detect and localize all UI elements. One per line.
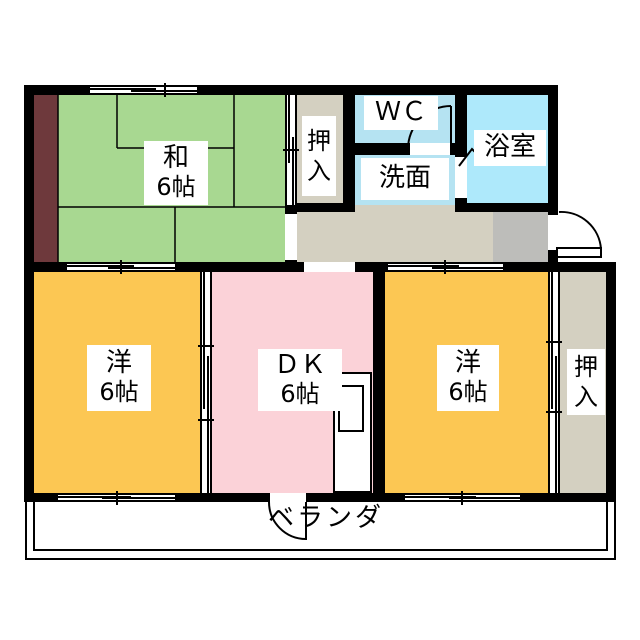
window-westernright-bottom [405, 493, 520, 502]
wall-hall-top-right [455, 203, 558, 212]
floor-plan: 和 6帖 押 入 ＷＣ 洗面 浴室 洋 6帖 ＤＫ 6帖 洋 6帖 押 入 ベラ… [0, 0, 640, 640]
wall-right-under-entrance [548, 252, 558, 262]
slidingdoor-japanese-closet [285, 95, 297, 205]
window-japanese-top [90, 85, 197, 95]
closet-right-char2: 入 [574, 382, 598, 412]
veranda-name: ベランダ [268, 504, 384, 534]
label-dining-kitchen: ＤＫ 6帖 [258, 349, 342, 411]
closet-right-char1: 押 [574, 352, 598, 382]
hallway [297, 205, 493, 262]
wall-right-upper [548, 85, 558, 215]
door-bathroom [455, 155, 467, 200]
dk-name: ＤＫ [274, 351, 326, 381]
label-japanese-room: 和 6帖 [144, 141, 208, 205]
wall-closet-wc [343, 95, 355, 205]
label-western-right: 洋 6帖 [437, 345, 499, 411]
entrance-door-swing-arc [559, 212, 601, 249]
slidingdoor-westernright-closet [548, 272, 560, 493]
tatami-edge-strip [34, 95, 58, 262]
door-entrance-opening [548, 213, 558, 252]
western-right-size: 6帖 [448, 379, 487, 407]
slidingdoor-westernleft-dk [200, 272, 212, 493]
slidingdoor-hall-westernright [388, 262, 503, 272]
wall-right-lower [606, 262, 616, 502]
closet-top-char2: 入 [307, 156, 331, 186]
doorway-japanese-hall [285, 212, 297, 262]
door-dk-veranda [268, 493, 308, 502]
closet-top-char1: 押 [307, 126, 331, 156]
wc-name: ＷＣ [375, 98, 427, 128]
western-right-name: 洋 [455, 349, 481, 379]
entrance-door-leaf [557, 248, 601, 257]
label-bathroom: 浴室 [474, 130, 546, 166]
wall-left [24, 85, 34, 502]
dk-size: 6帖 [280, 381, 319, 409]
entrance-step [493, 212, 548, 262]
label-western-left: 洋 6帖 [87, 345, 151, 411]
western-left-size: 6帖 [99, 379, 138, 407]
label-closet-right: 押 入 [567, 349, 605, 415]
slidingdoor-japanese-westernleft [67, 262, 175, 272]
japanese-room-size: 6帖 [156, 174, 195, 202]
window-westernleft-bottom [58, 493, 175, 502]
washroom-name: 洗面 [379, 164, 431, 194]
label-veranda: ベランダ [268, 504, 384, 534]
door-wc [408, 143, 452, 155]
doorway-hall-dk [302, 262, 357, 272]
wall-dk-western-right [373, 272, 385, 493]
japanese-room-name: 和 [163, 144, 189, 174]
label-washroom: 洗面 [361, 158, 449, 200]
label-wc: ＷＣ [364, 96, 438, 130]
bathroom-name: 浴室 [484, 133, 536, 163]
western-left-name: 洋 [106, 349, 132, 379]
label-closet-top: 押 入 [302, 116, 336, 196]
